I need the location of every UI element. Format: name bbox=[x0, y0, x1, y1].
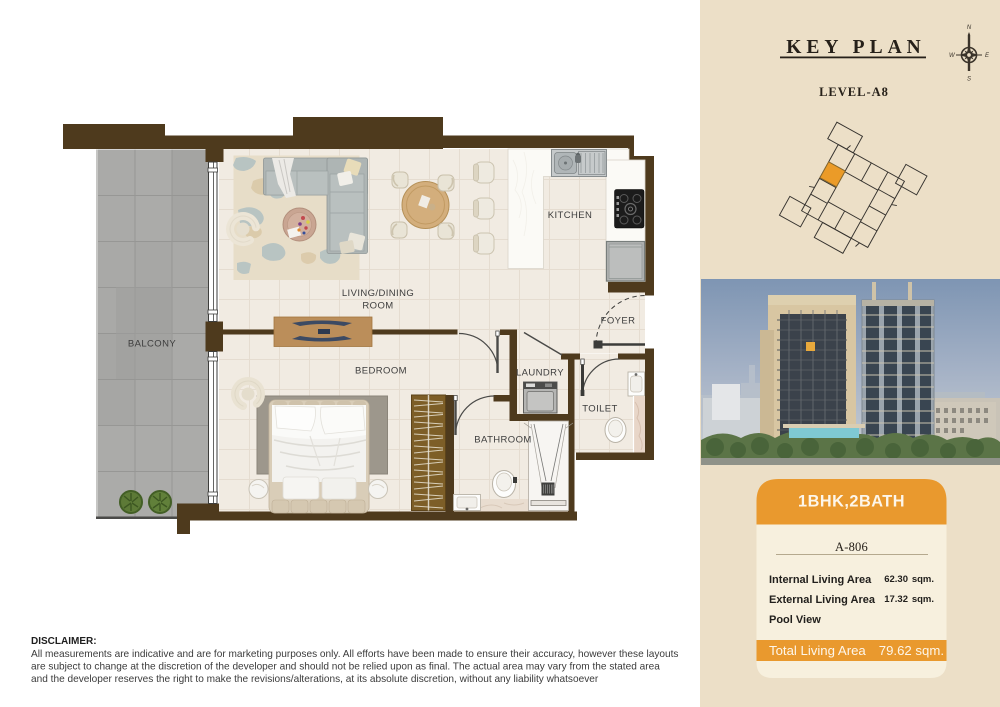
svg-text:A-806: A-806 bbox=[835, 540, 868, 554]
svg-text:and the developer reserves the: and the developer reserves the right to … bbox=[31, 674, 599, 685]
svg-text:Pool View: Pool View bbox=[769, 614, 821, 626]
svg-text:ROOM: ROOM bbox=[362, 301, 393, 312]
svg-text:BATHROOM: BATHROOM bbox=[474, 435, 531, 446]
svg-text:LAUNDRY: LAUNDRY bbox=[516, 368, 564, 379]
svg-text:79.62 sqm.: 79.62 sqm. bbox=[879, 643, 944, 658]
svg-text:LIVING/DINING: LIVING/DINING bbox=[342, 288, 414, 299]
svg-text:DISCLAIMER:: DISCLAIMER: bbox=[31, 636, 97, 647]
svg-text:Internal Living Area: Internal Living Area bbox=[769, 574, 872, 586]
svg-text:62.30: 62.30 bbox=[884, 574, 908, 585]
svg-text:sqm.: sqm. bbox=[912, 574, 934, 585]
svg-text:Total Living Area: Total Living Area bbox=[769, 643, 866, 658]
svg-text:LEVEL-A8: LEVEL-A8 bbox=[819, 85, 889, 99]
svg-text:All measurements are indicativ: All measurements are indicative and are … bbox=[31, 649, 678, 660]
svg-text:BALCONY: BALCONY bbox=[128, 339, 176, 350]
svg-text:N: N bbox=[967, 25, 972, 31]
svg-text:KEY PLAN: KEY PLAN bbox=[786, 37, 926, 58]
svg-text:are subject to change at the d: are subject to change at the discretion … bbox=[31, 662, 660, 673]
svg-text:sqm.: sqm. bbox=[912, 594, 934, 605]
svg-text:1BHK,2BATH: 1BHK,2BATH bbox=[798, 493, 905, 511]
svg-text:S: S bbox=[967, 77, 971, 83]
svg-text:17.32: 17.32 bbox=[884, 594, 908, 605]
svg-text:BEDROOM: BEDROOM bbox=[355, 366, 407, 377]
svg-text:FOYER: FOYER bbox=[601, 316, 636, 327]
svg-text:External Living Area: External Living Area bbox=[769, 594, 876, 606]
svg-text:TOILET: TOILET bbox=[582, 404, 617, 415]
svg-text:KITCHEN: KITCHEN bbox=[548, 210, 593, 221]
